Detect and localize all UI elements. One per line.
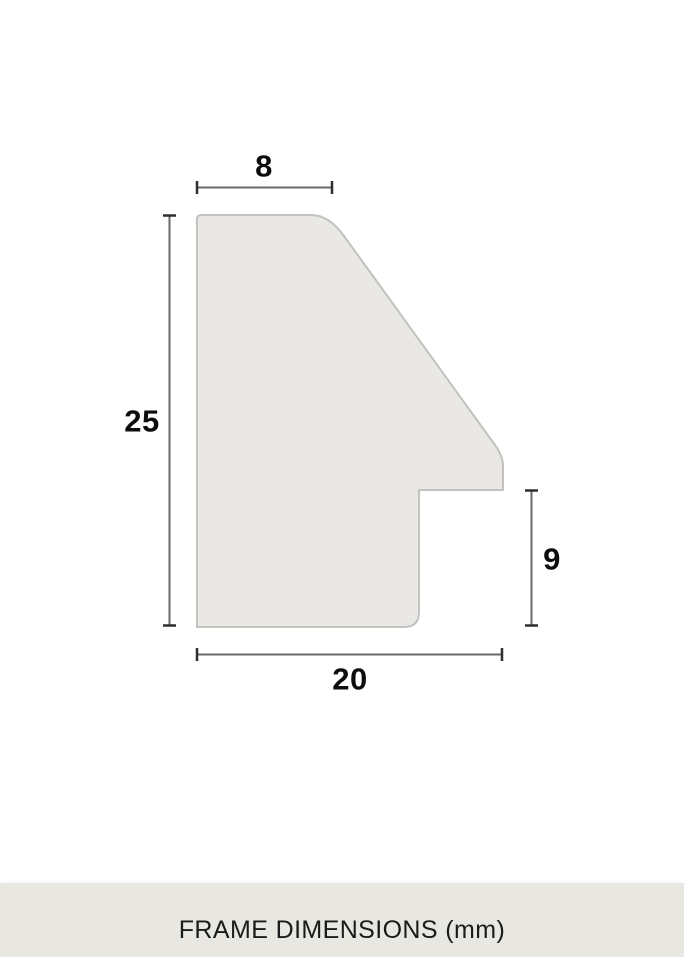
frame-dimensions-diagram: 8 25 9 20 FRAME DIMENSIONS (mm) <box>0 0 684 957</box>
footer-bar: FRAME DIMENSIONS (mm) <box>0 883 684 957</box>
dimension-label-bottom-width: 20 <box>332 664 367 695</box>
dimension-label-top-width: 8 <box>255 151 273 182</box>
dimension-label-left-height: 25 <box>124 406 159 437</box>
dimension-label-right-rabbet: 9 <box>543 544 561 575</box>
frame-profile-shape <box>197 215 503 627</box>
footer-caption: FRAME DIMENSIONS (mm) <box>179 918 505 943</box>
dimension-line-left-height <box>163 215 176 626</box>
dimension-line-right-rabbet <box>525 490 538 626</box>
dimension-line-bottom-width <box>197 648 502 661</box>
profile-drawing <box>0 0 684 957</box>
